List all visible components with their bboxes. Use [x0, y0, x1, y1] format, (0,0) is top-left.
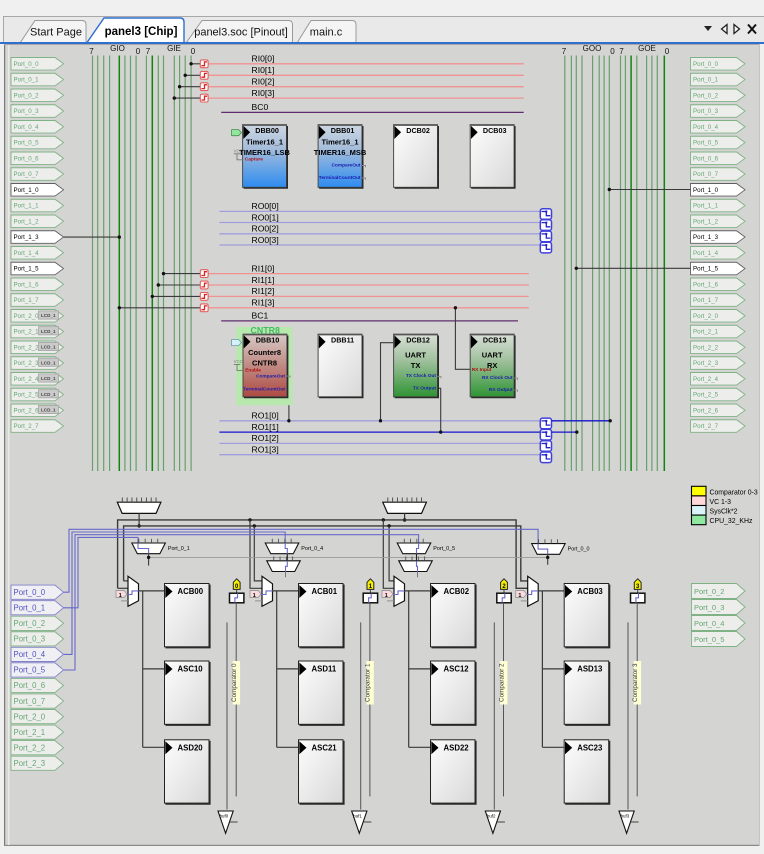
svg-text:Port_0_1: Port_0_1 — [14, 77, 40, 84]
svg-text:Port_0_1: Port_0_1 — [14, 603, 46, 612]
svg-text:Port_1_7: Port_1_7 — [693, 297, 719, 304]
svg-text:ASC23: ASC23 — [577, 743, 603, 752]
svg-text:DCB02: DCB02 — [406, 126, 430, 135]
svg-text:ACB01: ACB01 — [312, 587, 338, 596]
svg-text:TX Clock Out: TX Clock Out — [406, 373, 437, 379]
svg-text:Port_0_4: Port_0_4 — [301, 546, 323, 552]
svg-text:Port_0_2: Port_0_2 — [14, 619, 46, 628]
svg-text:panel3.soc [Pinout]: panel3.soc [Pinout] — [194, 27, 288, 39]
svg-text:7: 7 — [562, 47, 567, 56]
svg-text:Comparator 1: Comparator 1 — [365, 663, 372, 702]
svg-text:Comparator 3: Comparator 3 — [632, 663, 639, 702]
svg-text:Comparator 0-3: Comparator 0-3 — [710, 489, 758, 496]
svg-text:RO0[2]: RO0[2] — [252, 224, 279, 234]
svg-text:Port_2_0: Port_2_0 — [693, 313, 719, 320]
svg-text:Port_0_7: Port_0_7 — [14, 697, 46, 706]
svg-text:Port_2_6: Port_2_6 — [14, 407, 40, 414]
svg-text:ASD11: ASD11 — [312, 665, 337, 674]
svg-text:Port_0_0: Port_0_0 — [568, 547, 590, 553]
svg-text:RO1[2]: RO1[2] — [252, 433, 279, 443]
svg-text:TX Output: TX Output — [413, 386, 437, 392]
svg-text:panel3 [Chip]: panel3 [Chip] — [105, 26, 178, 38]
svg-text:Port_2_2: Port_2_2 — [14, 743, 46, 752]
svg-text:RI1[0]: RI1[0] — [252, 263, 275, 273]
svg-text:Port_2_6: Port_2_6 — [693, 407, 719, 414]
svg-text:Port_2_1: Port_2_1 — [693, 329, 719, 336]
svg-text:TIMER16_MSB: TIMER16_MSB — [314, 148, 367, 157]
svg-text:DBB11: DBB11 — [331, 335, 354, 344]
svg-text:RX Output: RX Output — [489, 387, 513, 393]
svg-text:buf3: buf3 — [621, 814, 630, 819]
svg-text:Port_2_3: Port_2_3 — [693, 360, 719, 367]
svg-text:Port_2_3: Port_2_3 — [14, 759, 46, 768]
svg-text:LCD_1: LCD_1 — [41, 329, 56, 334]
svg-text:RO1[1]: RO1[1] — [252, 422, 279, 432]
svg-text:buf2: buf2 — [487, 814, 496, 819]
svg-text:RX Clock Out: RX Clock Out — [482, 375, 513, 381]
svg-text:GIE: GIE — [167, 44, 181, 53]
svg-text:RI1[3]: RI1[3] — [252, 298, 275, 308]
svg-text:ASC12: ASC12 — [444, 665, 470, 674]
svg-text:CNTR8: CNTR8 — [252, 359, 277, 368]
svg-text:Port_0_4: Port_0_4 — [694, 619, 724, 628]
svg-text:Port_1_0: Port_1_0 — [693, 187, 719, 194]
svg-text:RO1[0]: RO1[0] — [252, 411, 279, 421]
svg-text:Port_2_0: Port_2_0 — [14, 712, 46, 721]
svg-text:RI0[2]: RI0[2] — [252, 77, 275, 87]
svg-text:VCC: VCC — [234, 359, 243, 364]
svg-text:Port_0_0: Port_0_0 — [693, 61, 719, 68]
svg-text:TIMER16_LSB: TIMER16_LSB — [239, 148, 290, 157]
svg-text:RI0[3]: RI0[3] — [252, 88, 275, 98]
svg-text:VC 1-3: VC 1-3 — [710, 499, 732, 506]
svg-text:Port_0_1: Port_0_1 — [693, 77, 719, 84]
svg-text:Port_0_5: Port_0_5 — [433, 546, 455, 552]
svg-text:Counter8: Counter8 — [248, 348, 281, 357]
svg-text:DCB03: DCB03 — [483, 126, 507, 135]
svg-text:Port_1_1: Port_1_1 — [14, 203, 40, 210]
svg-text:LCD_1: LCD_1 — [41, 313, 56, 318]
svg-text:TX: TX — [411, 361, 421, 370]
svg-text:LCD_1: LCD_1 — [41, 376, 56, 381]
svg-text:Port_1_6: Port_1_6 — [693, 281, 719, 288]
svg-text:ACB02: ACB02 — [444, 587, 470, 596]
svg-text:buf1: buf1 — [353, 814, 362, 819]
svg-text:TerminalCountOut: TerminalCountOut — [319, 175, 361, 181]
svg-text:Port_0_2: Port_0_2 — [693, 92, 719, 99]
svg-text:Port_0_3: Port_0_3 — [693, 108, 719, 115]
svg-text:7: 7 — [89, 47, 94, 56]
svg-text:Port_0_0: Port_0_0 — [14, 588, 46, 597]
svg-text:0: 0 — [665, 47, 670, 56]
svg-text:Port_1_7: Port_1_7 — [14, 297, 40, 304]
svg-text:Port_1_5: Port_1_5 — [14, 266, 40, 273]
svg-text:Port_2_4: Port_2_4 — [14, 376, 40, 383]
svg-text:Port_2_2: Port_2_2 — [693, 344, 719, 351]
svg-text:Comparator 0: Comparator 0 — [231, 663, 238, 702]
svg-text:CPU_32_KHz: CPU_32_KHz — [710, 518, 753, 525]
svg-text:0: 0 — [136, 47, 141, 56]
svg-text:Port_0_5: Port_0_5 — [693, 140, 719, 147]
svg-text:VCC: VCC — [234, 148, 243, 153]
svg-text:Port_1_4: Port_1_4 — [14, 250, 40, 257]
svg-text:Port_0_7: Port_0_7 — [14, 171, 40, 178]
svg-text:Timer16_1: Timer16_1 — [322, 138, 359, 147]
svg-text:Port_1_5: Port_1_5 — [693, 266, 719, 273]
svg-text:Port_2_0: Port_2_0 — [14, 313, 40, 320]
svg-text:Port_2_1: Port_2_1 — [14, 329, 40, 336]
svg-text:Port_1_3: Port_1_3 — [693, 234, 719, 241]
svg-text:LCD_1: LCD_1 — [41, 392, 56, 397]
svg-text:ASD13: ASD13 — [577, 665, 603, 674]
svg-text:7: 7 — [146, 47, 151, 56]
svg-text:main.c: main.c — [310, 27, 343, 39]
svg-text:Port_0_2: Port_0_2 — [694, 587, 724, 596]
svg-text:0: 0 — [610, 47, 615, 56]
svg-text:Port_0_4: Port_0_4 — [14, 124, 40, 131]
svg-text:ASD22: ASD22 — [444, 743, 470, 752]
svg-text:Port_0_7: Port_0_7 — [693, 171, 719, 178]
svg-text:Port_0_1: Port_0_1 — [168, 546, 190, 552]
svg-text:Port_2_4: Port_2_4 — [693, 376, 719, 383]
svg-text:DBB01: DBB01 — [331, 126, 355, 135]
svg-text:RI0[0]: RI0[0] — [252, 54, 275, 64]
svg-text:Port_1_1: Port_1_1 — [693, 203, 719, 210]
svg-text:Port_2_1: Port_2_1 — [14, 728, 46, 737]
svg-text:Port_0_3: Port_0_3 — [14, 635, 46, 644]
svg-text:BC1: BC1 — [252, 311, 269, 321]
svg-text:Port_0_6: Port_0_6 — [14, 155, 40, 162]
svg-text:GOE: GOE — [638, 44, 656, 53]
svg-text:Port_0_5: Port_0_5 — [694, 635, 724, 644]
svg-text:Port_2_7: Port_2_7 — [693, 423, 719, 430]
svg-text:Comparator 2: Comparator 2 — [498, 663, 505, 702]
svg-text:RI1[2]: RI1[2] — [252, 286, 275, 296]
svg-text:Port_2_5: Port_2_5 — [693, 392, 719, 399]
svg-text:Port_0_4: Port_0_4 — [693, 124, 719, 131]
svg-text:Timer16_1: Timer16_1 — [246, 138, 283, 147]
svg-text:Port_0_3: Port_0_3 — [694, 603, 724, 612]
svg-text:Port_2_3: Port_2_3 — [14, 360, 40, 367]
svg-text:ASC10: ASC10 — [178, 665, 204, 674]
svg-text:BC0: BC0 — [252, 102, 269, 112]
svg-text:Port_0_6: Port_0_6 — [693, 155, 719, 162]
svg-text:Port_2_7: Port_2_7 — [14, 423, 40, 430]
svg-text:Capture: Capture — [245, 157, 263, 163]
svg-text:Port_0_2: Port_0_2 — [14, 92, 40, 99]
svg-text:LCD_1: LCD_1 — [41, 408, 56, 413]
svg-text:RI1[1]: RI1[1] — [252, 275, 275, 285]
svg-text:ASD20: ASD20 — [178, 743, 204, 752]
svg-text:Port_0_3: Port_0_3 — [14, 108, 40, 115]
svg-text:SysClk*2: SysClk*2 — [710, 509, 738, 516]
svg-text:Port_1_0: Port_1_0 — [14, 187, 40, 194]
svg-text:LCD_1: LCD_1 — [41, 345, 56, 350]
svg-text:Port_1_6: Port_1_6 — [14, 281, 40, 288]
svg-text:ACB00: ACB00 — [178, 587, 204, 596]
svg-text:UART: UART — [482, 351, 503, 360]
svg-text:Port_0_5: Port_0_5 — [14, 666, 46, 675]
svg-text:GOO: GOO — [583, 44, 602, 53]
svg-text:Port_1_2: Port_1_2 — [14, 218, 40, 225]
svg-text:Port_0_5: Port_0_5 — [14, 140, 40, 147]
svg-text:7: 7 — [619, 47, 624, 56]
svg-text:LCD_1: LCD_1 — [41, 360, 56, 365]
svg-text:GIO: GIO — [110, 44, 125, 53]
svg-text:Port_1_3: Port_1_3 — [14, 234, 40, 241]
svg-text:DBB00: DBB00 — [255, 126, 279, 135]
svg-text:Start Page: Start Page — [30, 27, 82, 39]
svg-text:CompareOut: CompareOut — [256, 373, 285, 379]
svg-text:ASC21: ASC21 — [312, 743, 338, 752]
svg-text:0: 0 — [191, 47, 196, 56]
svg-text:RX Input: RX Input — [472, 367, 492, 373]
svg-text:Port_2_5: Port_2_5 — [14, 392, 40, 399]
svg-text:Port_1_2: Port_1_2 — [693, 218, 719, 225]
svg-text:Port_0_4: Port_0_4 — [14, 650, 46, 659]
svg-text:Port_0_0: Port_0_0 — [14, 61, 40, 68]
svg-text:UART: UART — [405, 351, 426, 360]
svg-text:CompareOut: CompareOut — [331, 162, 360, 168]
svg-text:DBB10: DBB10 — [256, 335, 280, 344]
svg-text:RI0[1]: RI0[1] — [252, 65, 275, 75]
svg-text:RO0[3]: RO0[3] — [252, 235, 279, 245]
svg-text:Port_2_2: Port_2_2 — [14, 344, 40, 351]
svg-text:DCB13: DCB13 — [483, 335, 507, 344]
svg-text:RO0[0]: RO0[0] — [252, 201, 279, 211]
svg-text:buf0: buf0 — [220, 814, 229, 819]
svg-text:Port_0_6: Port_0_6 — [14, 681, 46, 690]
svg-text:Enable: Enable — [245, 367, 261, 373]
svg-text:RO1[3]: RO1[3] — [252, 445, 279, 455]
svg-text:ACB03: ACB03 — [577, 587, 603, 596]
svg-text:Port_1_4: Port_1_4 — [693, 250, 719, 257]
svg-text:RO0[1]: RO0[1] — [252, 212, 279, 222]
svg-text:DCB12: DCB12 — [406, 335, 430, 344]
svg-text:TerminalCountOut: TerminalCountOut — [243, 386, 285, 392]
